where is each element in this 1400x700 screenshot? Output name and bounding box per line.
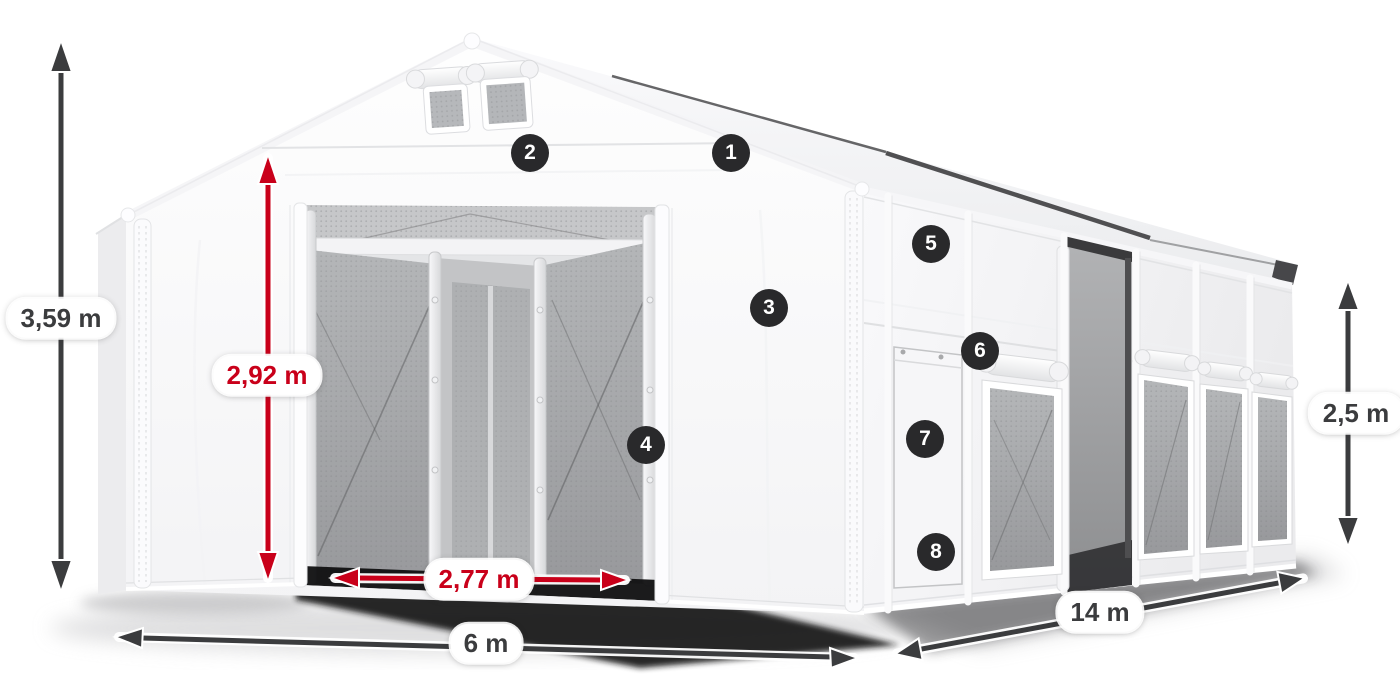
door-hook xyxy=(901,350,906,355)
dimension-label-side-length: 14 m xyxy=(1057,593,1142,632)
dimension-label-door-height: 2,92 m xyxy=(214,356,321,395)
callout-5-side-band: 5 xyxy=(912,225,950,263)
tent-illustration xyxy=(0,0,1400,700)
callout-1-roof: 1 xyxy=(712,134,750,172)
dimension-label-door-width: 2,77 m xyxy=(426,560,533,599)
door-hook xyxy=(939,355,944,360)
callout-3-front-wall: 3 xyxy=(750,289,788,327)
dimension-label-side-height: 2,5 m xyxy=(1310,394,1400,433)
callout-2-gable-lintel: 2 xyxy=(511,134,549,172)
side-sliding-opening xyxy=(1057,236,1132,593)
mesh-window-3 xyxy=(1197,361,1253,554)
tent-product-diagram: 3,59 m 2,92 m 2,77 m 6 m 14 m 2,5 m 1 2 … xyxy=(0,0,1400,700)
door-jamb-left xyxy=(294,203,307,587)
callout-4-inner-frame: 4 xyxy=(627,426,665,464)
dimension-label-total-height: 3,59 m xyxy=(8,299,115,338)
dimension-label-front-width: 6 m xyxy=(451,624,522,663)
door-jamb-right xyxy=(655,205,669,604)
callout-7-side-door: 7 xyxy=(906,420,944,458)
entrance-interior xyxy=(300,200,664,604)
callout-6-window: 6 xyxy=(961,332,999,370)
callout-8-side-door-bottom: 8 xyxy=(917,533,955,571)
mesh-window-4 xyxy=(1249,371,1298,547)
